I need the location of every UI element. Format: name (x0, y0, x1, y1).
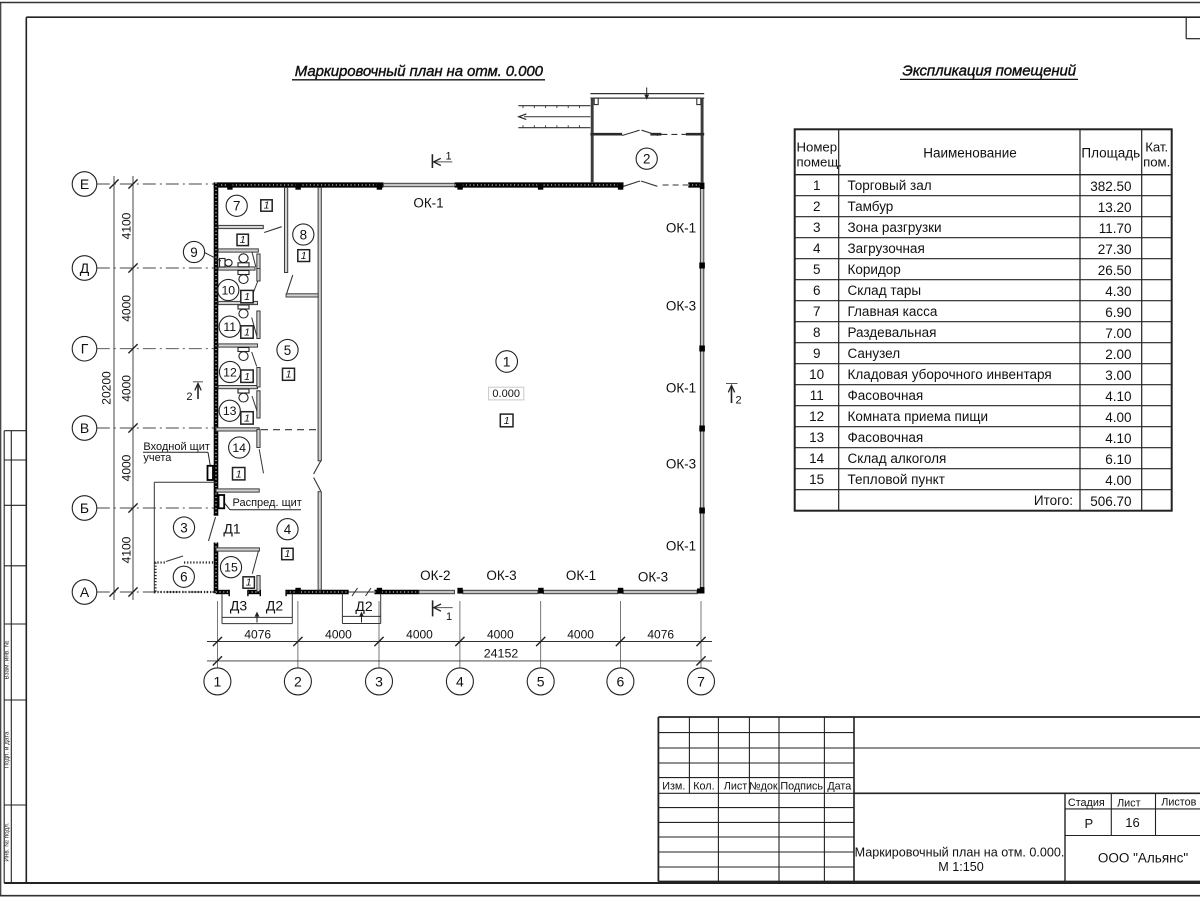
svg-text:ОК-3: ОК-3 (486, 568, 516, 583)
svg-text:Торговый зал: Торговый зал (848, 178, 932, 193)
svg-text:2.00: 2.00 (1105, 347, 1131, 362)
svg-text:1: 1 (214, 673, 222, 689)
svg-text:1: 1 (244, 291, 250, 303)
svg-text:Д2: Д2 (355, 598, 372, 614)
svg-text:1: 1 (246, 577, 252, 589)
svg-text:Подп. и дата: Подп. и дата (4, 731, 11, 769)
svg-text:1: 1 (301, 250, 307, 262)
svg-text:Д3: Д3 (230, 598, 247, 614)
svg-text:учета: учета (143, 452, 172, 464)
svg-text:6: 6 (617, 673, 625, 689)
svg-text:4: 4 (284, 522, 292, 537)
svg-text:№док.: №док. (749, 780, 781, 792)
svg-text:Раздевальная: Раздевальная (848, 325, 937, 340)
svg-text:8: 8 (300, 227, 307, 242)
svg-text:1: 1 (813, 178, 821, 193)
svg-text:Г: Г (81, 341, 89, 357)
svg-text:Дата: Дата (827, 780, 851, 792)
svg-text:Изм.: Изм. (662, 780, 685, 792)
svg-text:506.70: 506.70 (1090, 494, 1131, 509)
svg-text:Стадия: Стадия (1068, 797, 1105, 809)
svg-text:Экспликация помещений: Экспликация помещений (902, 63, 1076, 80)
svg-text:Кол.: Кол. (693, 780, 714, 792)
svg-text:Б: Б (80, 500, 89, 516)
svg-text:11: 11 (810, 388, 824, 403)
svg-text:20200: 20200 (100, 371, 114, 405)
svg-text:Д1: Д1 (223, 521, 240, 537)
svg-text:4000: 4000 (325, 627, 352, 641)
svg-text:Итого:: Итого: (1034, 493, 1073, 508)
svg-text:4.10: 4.10 (1105, 431, 1131, 446)
svg-text:4000: 4000 (120, 375, 134, 402)
svg-text:Зона разгрузки: Зона разгрузки (848, 220, 942, 235)
svg-text:7.00: 7.00 (1105, 326, 1131, 341)
svg-text:Листов: Листов (1161, 797, 1196, 809)
svg-text:Инв. № подл.: Инв. № подл. (4, 822, 11, 861)
svg-text:4100: 4100 (120, 212, 134, 239)
svg-text:4.00: 4.00 (1105, 410, 1131, 425)
svg-text:2: 2 (294, 673, 302, 689)
svg-text:4.30: 4.30 (1105, 284, 1131, 299)
svg-text:1: 1 (284, 548, 290, 560)
svg-text:Склад алкоголя: Склад алкоголя (848, 451, 947, 466)
svg-text:ОК-1: ОК-1 (666, 539, 696, 554)
svg-text:12: 12 (223, 365, 237, 379)
svg-text:ОК-3: ОК-3 (666, 299, 696, 314)
svg-text:13: 13 (809, 430, 824, 445)
svg-text:4: 4 (456, 673, 464, 689)
svg-text:Р: Р (1084, 816, 1093, 831)
svg-text:Наименование: Наименование (923, 146, 1017, 161)
svg-text:10: 10 (221, 283, 235, 297)
svg-text:5: 5 (284, 343, 291, 358)
svg-text:пом.: пом. (1143, 155, 1170, 170)
svg-text:ОК-1: ОК-1 (413, 196, 443, 211)
svg-text:14: 14 (232, 441, 246, 455)
svg-text:4076: 4076 (647, 627, 674, 641)
svg-text:Склад тары: Склад тары (848, 283, 922, 298)
svg-text:4000: 4000 (567, 627, 594, 641)
svg-text:ОК-1: ОК-1 (666, 381, 696, 396)
svg-text:1: 1 (504, 415, 510, 427)
svg-text:10: 10 (809, 367, 824, 382)
svg-text:16: 16 (1125, 815, 1139, 830)
svg-text:Д: Д (80, 260, 90, 276)
svg-text:М 1:150: М 1:150 (938, 860, 984, 874)
svg-text:12: 12 (809, 409, 824, 424)
svg-text:13.20: 13.20 (1098, 200, 1132, 215)
svg-text:5: 5 (813, 262, 821, 277)
svg-text:Площадь: Площадь (1081, 146, 1140, 161)
svg-text:11.70: 11.70 (1099, 221, 1132, 236)
svg-text:ОК-3: ОК-3 (666, 457, 696, 472)
svg-text:24152: 24152 (484, 647, 519, 661)
svg-text:1: 1 (244, 413, 250, 425)
svg-text:13: 13 (223, 404, 237, 418)
svg-text:3: 3 (375, 673, 383, 689)
svg-text:4000: 4000 (487, 627, 514, 641)
svg-text:Подпись: Подпись (780, 780, 823, 792)
svg-text:27.30: 27.30 (1098, 242, 1132, 257)
svg-text:Кат.: Кат. (1145, 140, 1168, 155)
svg-text:2: 2 (643, 152, 650, 167)
svg-text:1: 1 (240, 234, 246, 246)
svg-text:4100: 4100 (120, 536, 134, 563)
svg-text:1: 1 (264, 200, 270, 212)
svg-text:0.000: 0.000 (492, 388, 520, 400)
svg-text:1: 1 (446, 611, 452, 623)
svg-text:Кладовая уборочного инвентаря: Кладовая уборочного инвентаря (848, 367, 1052, 382)
svg-text:Главная касса: Главная касса (848, 304, 938, 319)
svg-text:6.90: 6.90 (1105, 305, 1131, 320)
svg-text:ОК-1: ОК-1 (566, 568, 596, 583)
svg-text:9: 9 (813, 346, 821, 361)
svg-text:6: 6 (813, 283, 821, 298)
svg-text:ОК-3: ОК-3 (638, 570, 668, 585)
svg-text:ОК-1: ОК-1 (666, 221, 696, 236)
svg-text:7: 7 (233, 199, 240, 214)
svg-text:3: 3 (813, 220, 821, 235)
svg-text:15: 15 (809, 472, 824, 487)
svg-text:4000: 4000 (120, 454, 134, 481)
svg-text:1: 1 (244, 327, 250, 339)
svg-text:Фасовочная: Фасовочная (848, 388, 924, 403)
svg-text:3: 3 (180, 520, 187, 535)
svg-text:5: 5 (537, 673, 545, 689)
svg-text:11: 11 (223, 320, 236, 334)
svg-text:2: 2 (813, 199, 821, 214)
svg-text:4000: 4000 (120, 295, 134, 322)
svg-text:Е: Е (80, 176, 89, 192)
svg-text:Д2: Д2 (266, 598, 283, 614)
svg-text:4.00: 4.00 (1105, 473, 1131, 488)
svg-text:Взам. инв. №: Взам. инв. № (4, 640, 11, 679)
svg-text:382.50: 382.50 (1090, 179, 1131, 194)
svg-text:4000: 4000 (406, 627, 433, 641)
svg-text:Лист: Лист (724, 780, 748, 792)
svg-text:1: 1 (236, 468, 242, 480)
svg-text:7: 7 (813, 304, 821, 319)
svg-text:А: А (80, 584, 90, 600)
svg-text:Санузел: Санузел (848, 346, 901, 361)
svg-text:8: 8 (813, 325, 821, 340)
svg-text:Загрузочная: Загрузочная (848, 241, 925, 256)
svg-text:Распред. щит: Распред. щит (233, 497, 302, 509)
svg-text:6.10: 6.10 (1105, 452, 1131, 467)
svg-text:Коридор: Коридор (848, 262, 901, 277)
svg-text:Лист: Лист (1117, 798, 1141, 810)
svg-text:4076: 4076 (244, 627, 271, 641)
svg-text:ООО "Альянс": ООО "Альянс" (1098, 851, 1188, 866)
svg-text:9: 9 (190, 245, 197, 260)
svg-text:1: 1 (244, 371, 250, 383)
svg-text:7: 7 (697, 673, 705, 689)
svg-text:помещ.: помещ. (797, 155, 842, 170)
svg-text:Маркировочный план на отм. 0.0: Маркировочный план на отм. 0.000 (295, 63, 544, 80)
svg-text:6: 6 (180, 570, 187, 585)
svg-text:26.50: 26.50 (1098, 263, 1132, 278)
svg-text:Комната приема пищи: Комната приема пищи (848, 409, 989, 424)
svg-text:3.00: 3.00 (1105, 368, 1131, 383)
svg-text:4: 4 (813, 241, 821, 256)
svg-text:1: 1 (286, 369, 292, 381)
svg-text:14: 14 (809, 451, 825, 466)
svg-text:2: 2 (736, 395, 742, 407)
svg-text:Тамбур: Тамбур (848, 199, 894, 214)
svg-text:Маркировочный план на отм. 0.0: Маркировочный план на отм. 0.000. (855, 846, 1065, 860)
svg-text:2: 2 (186, 391, 192, 403)
svg-text:4.10: 4.10 (1105, 389, 1131, 404)
svg-text:1: 1 (503, 354, 511, 370)
svg-text:1: 1 (446, 151, 452, 163)
svg-text:В: В (80, 420, 89, 436)
svg-text:ОК-2: ОК-2 (420, 568, 450, 583)
svg-text:15: 15 (224, 561, 238, 575)
svg-text:Номер: Номер (797, 140, 838, 155)
svg-text:Фасовочная: Фасовочная (848, 430, 924, 445)
svg-text:Тепловой пункт: Тепловой пункт (848, 472, 945, 487)
